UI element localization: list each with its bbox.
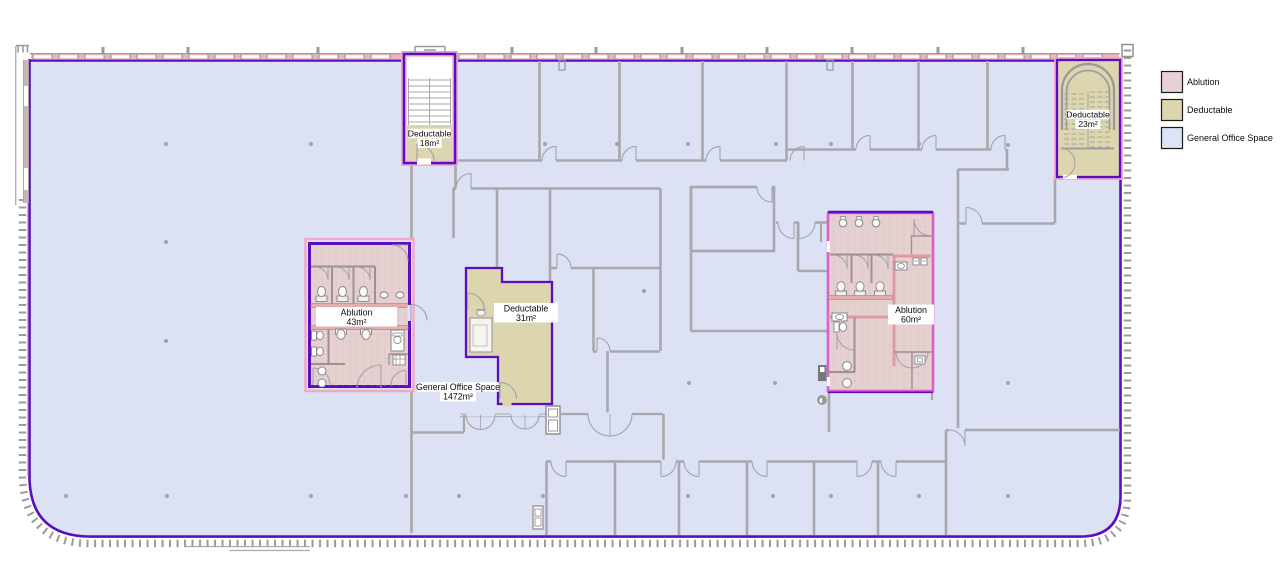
svg-text:60m²: 60m²	[901, 315, 921, 325]
svg-text:Ablution: Ablution	[895, 305, 927, 315]
svg-text:43m²: 43m²	[346, 317, 366, 327]
svg-text:23m²: 23m²	[1078, 119, 1098, 129]
svg-text:General Office Space: General Office Space	[416, 382, 500, 392]
svg-text:Deductable: Deductable	[1066, 110, 1110, 120]
svg-text:Ablution: Ablution	[1187, 77, 1220, 87]
svg-text:18m²: 18m²	[420, 138, 440, 148]
svg-text:Deductable: Deductable	[408, 129, 452, 139]
svg-text:31m²: 31m²	[516, 313, 536, 323]
svg-text:1472m²: 1472m²	[443, 392, 473, 402]
svg-text:Deductable: Deductable	[1187, 105, 1233, 115]
svg-text:Deductable: Deductable	[504, 304, 549, 314]
svg-text:General Office Space: General Office Space	[1187, 133, 1273, 143]
svg-text:Ablution: Ablution	[341, 308, 373, 318]
